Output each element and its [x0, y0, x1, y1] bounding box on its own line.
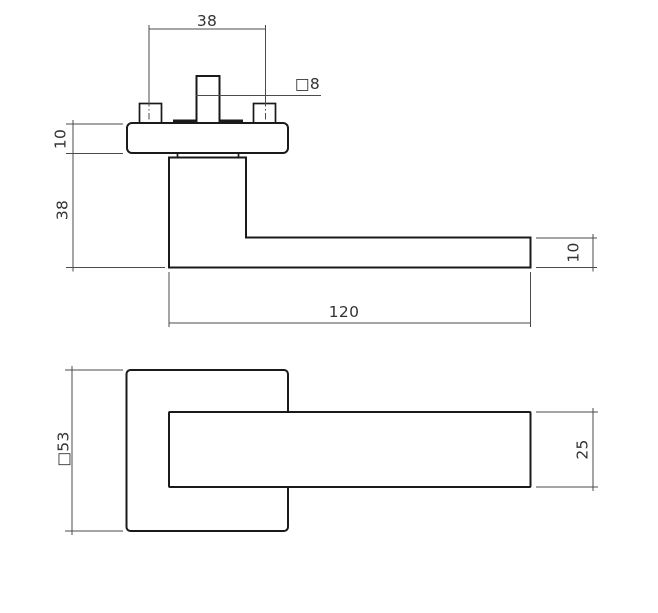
dim-label-rosette-size: □53 [54, 431, 72, 466]
dim-label-grip-thickness: 10 [564, 242, 582, 262]
dim-label-rosette-thickness: 10 [51, 129, 69, 149]
dim-label-spindle: □8 [295, 75, 320, 93]
dim-label-screw-spacing: 38 [197, 12, 217, 30]
dim-handle-length: 120 [169, 272, 531, 327]
dim-label-handle-length: 120 [329, 303, 360, 321]
screw-right [254, 104, 276, 124]
handle-profile [169, 158, 531, 268]
spindle [197, 76, 220, 123]
dim-grip-thickness: 10 [536, 234, 597, 272]
front-view: 38 □8 10 38 [51, 12, 597, 327]
dim-label-grip-width: 25 [573, 439, 591, 459]
screw-left [140, 104, 162, 124]
rosette-side [127, 123, 288, 153]
dim-grip-width: 25 [536, 408, 598, 491]
dim-rosette-size: □53 [54, 366, 123, 535]
plan-view: □53 25 [54, 366, 598, 535]
technical-drawing: 38 □8 10 38 [0, 0, 658, 613]
handle-grip-bar [169, 412, 531, 487]
dim-label-handle-height: 38 [53, 200, 71, 220]
